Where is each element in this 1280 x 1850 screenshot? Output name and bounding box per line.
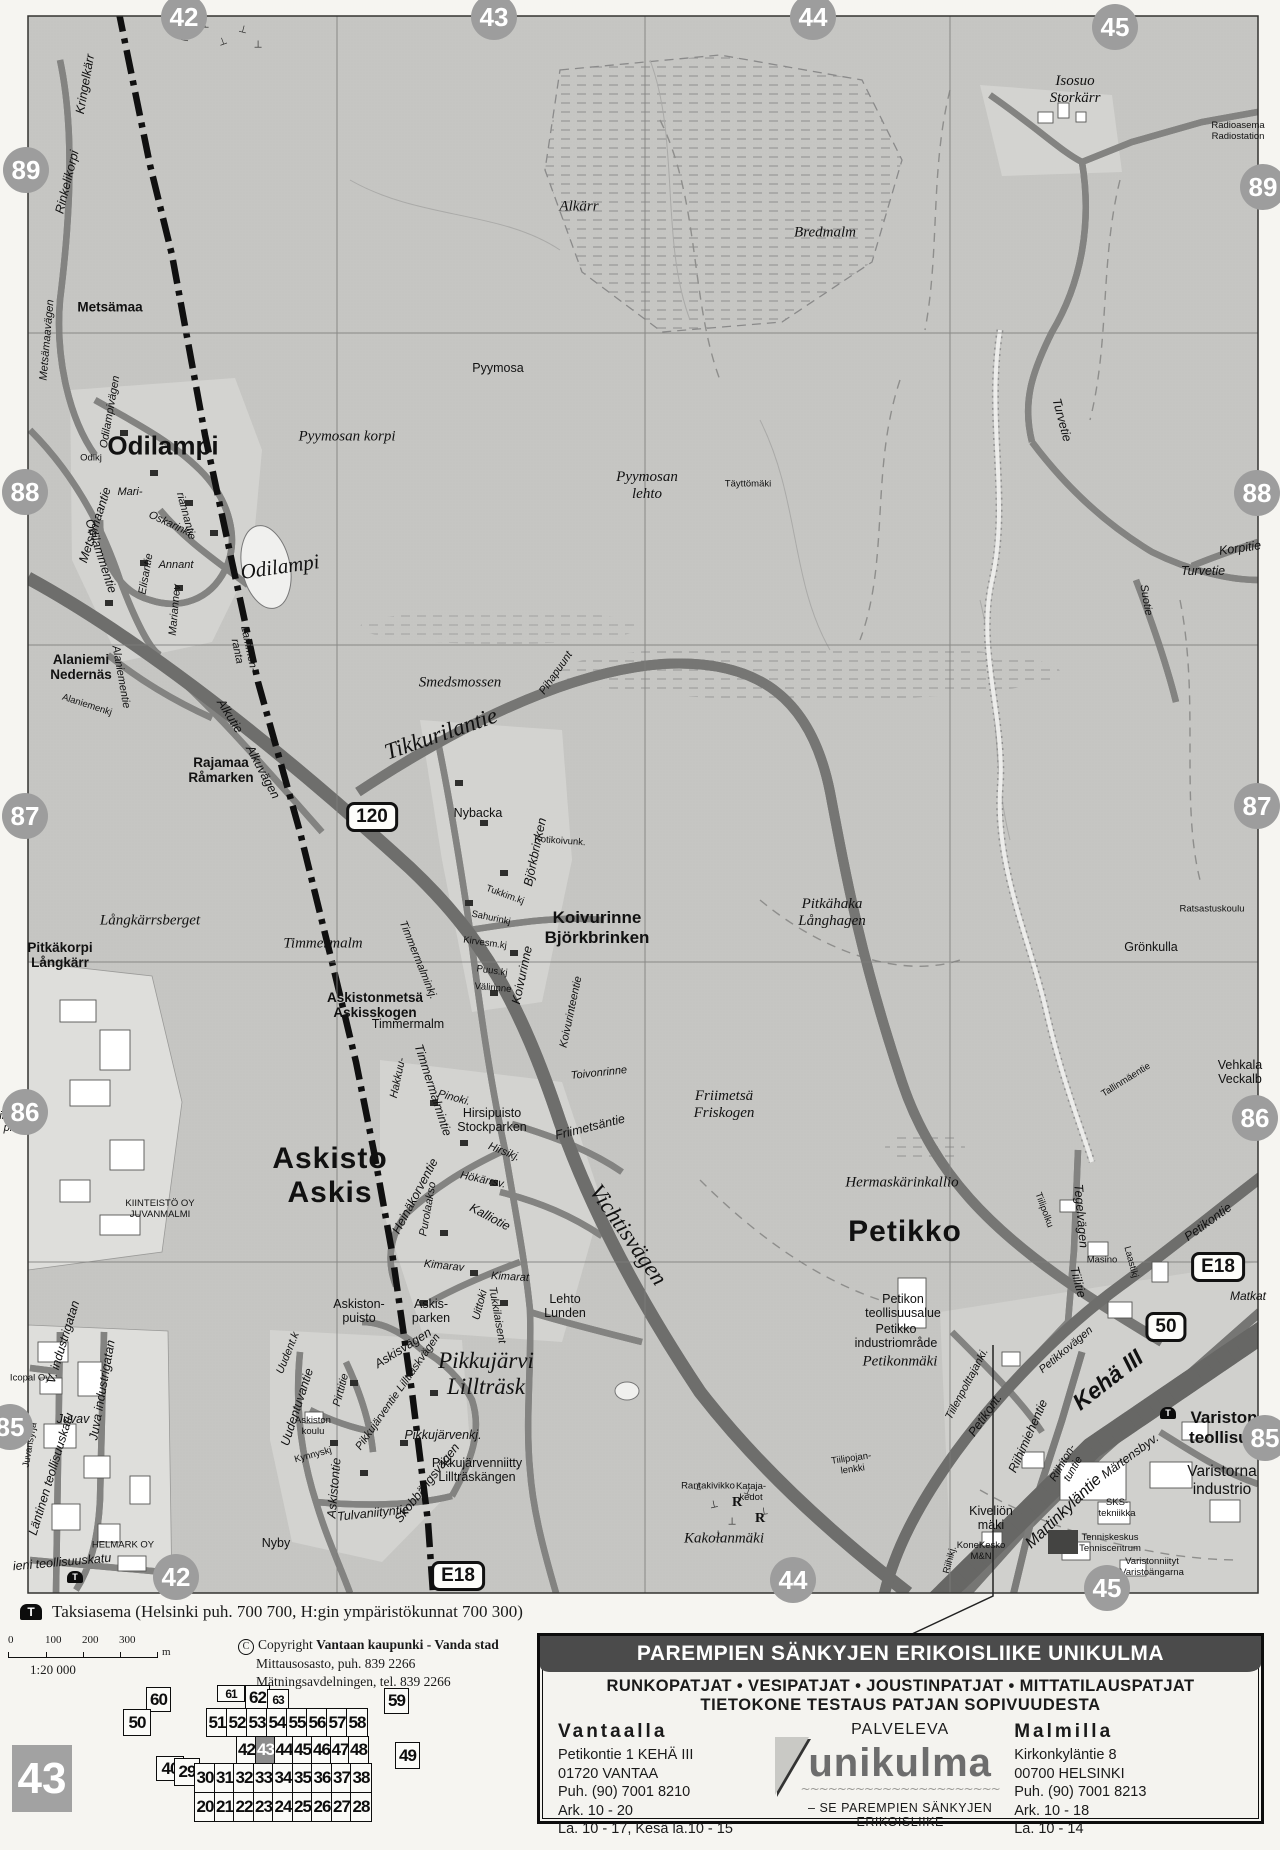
grid-page-cell: 20 — [194, 1792, 216, 1822]
grid-page-cell: 48 — [348, 1736, 369, 1764]
grid-page-cell: 33 — [253, 1763, 274, 1793]
map-label: Matkat — [1230, 1289, 1266, 1303]
road-shield: E18 — [1191, 1252, 1245, 1282]
map-label: SKS- tekniikka — [1099, 1497, 1136, 1519]
map-label: Pikkujärvi Lillträsk — [438, 1348, 534, 1400]
map-label: Radioasema Radiostation — [1211, 120, 1264, 142]
ad-address-line: Ark. 10 - 20 — [558, 1802, 786, 1821]
scale-tick: 200 — [82, 1634, 119, 1646]
taxi-station-icon: T — [67, 1571, 83, 1583]
unikulma-logo-wave: ~~~~~~~~~~~~~~~~~~~~~~ — [801, 1782, 1000, 1790]
ad-address-line: 01720 VANTAA — [558, 1765, 786, 1784]
page-edge-badge: 45 — [1092, 4, 1138, 50]
map-label: Timmermalm — [372, 1017, 444, 1031]
map-label: Askistonmetsä Askisskogen — [327, 990, 423, 1020]
map-label: Varistorna industrio — [1187, 1463, 1257, 1499]
copyright-line3: Mätningsavdelningen, tel. 839 2266 — [256, 1673, 499, 1691]
map-label: Varistonniityt Varistoängarna — [1120, 1556, 1184, 1578]
page-edge-badge: 42 — [153, 1554, 199, 1600]
page-edge-badge: 87 — [2, 793, 48, 839]
page-edge-badge: 86 — [1232, 1095, 1278, 1141]
page-edge-badge: 85 — [1242, 1415, 1280, 1461]
grid-page-cell: 63 — [267, 1689, 289, 1710]
map-label: R — [732, 1495, 742, 1511]
grid-page-cell: 50 — [123, 1709, 151, 1736]
ad-slogan-line: TIETOKONE TESTAUS PATJAN SOPIVUUDESTA — [540, 1696, 1261, 1715]
grid-page-cell: 57 — [326, 1708, 348, 1737]
page-edge-badge: 88 — [1234, 470, 1280, 516]
map-label: Hirsipuisto Stockparken — [457, 1106, 526, 1134]
scale-tick: 300 — [119, 1634, 156, 1646]
scale-tick: 0 — [8, 1634, 45, 1646]
map-label: Nyby — [262, 1536, 290, 1550]
map-label: Grönkulla — [1124, 940, 1178, 954]
map-label: Turvetie — [1181, 564, 1225, 578]
grid-page-cell: 37 — [331, 1763, 352, 1793]
grid-page-cell: 28 — [350, 1792, 372, 1822]
grid-page-cell: 47 — [330, 1736, 350, 1764]
scale-bar: 0100200300 m 1:20 000 — [8, 1634, 171, 1678]
grid-page-cell: 43 — [255, 1736, 276, 1764]
grid-page-cell: 59 — [384, 1688, 409, 1714]
grid-page-cell: 58 — [346, 1708, 368, 1737]
map-label: Täyttömäki — [725, 479, 771, 490]
map-label: Pitkähaka Långhagen — [798, 896, 866, 930]
map-label: Pyymosan korpi — [298, 429, 395, 446]
ad-address-line: La. 10 - 17, Kesä la.10 - 15 — [558, 1820, 786, 1839]
page-edge-badge: 89 — [3, 147, 49, 193]
grid-page-cell: 31 — [214, 1763, 235, 1793]
grid-page-cell: 53 — [246, 1708, 268, 1737]
grid-page-cell: 38 — [350, 1763, 372, 1793]
map-label: HELMARK OY — [92, 1540, 154, 1551]
ad-address-line: 00700 HELSINKI — [1014, 1765, 1242, 1784]
ad-products-line: RUNKOPATJAT • VESIPATJAT • JOUSTINPATJAT… — [540, 1677, 1261, 1696]
copyright-block: CCopyright Vantaan kaupunki - Vanda stad… — [238, 1636, 499, 1691]
grid-page-cell: 26 — [311, 1792, 333, 1822]
scale-tick-labels: 0100200300 — [8, 1634, 171, 1646]
map-page: RinkelikorpiKringelkärrMetsämaaMetsämaav… — [0, 0, 1280, 1850]
map-label: Hermaskärinkallio — [845, 1175, 958, 1192]
page-edge-badge: 86 — [2, 1089, 48, 1135]
map-label: Askiston- puisto — [333, 1297, 384, 1325]
road-shield: 120 — [346, 802, 398, 832]
map-label: Koivurinne Björkbrinken — [545, 908, 650, 948]
scale-tick: 100 — [45, 1634, 82, 1646]
ad-address-line: La. 10 - 14 — [1014, 1820, 1242, 1839]
map-label: Odilampi — [107, 431, 218, 462]
map-label: Masino — [1087, 1255, 1118, 1266]
scale-ratio: 1:20 000 — [30, 1662, 171, 1678]
map-label: Pyymosa — [472, 361, 523, 375]
grid-page-cell: 21 — [214, 1792, 235, 1822]
map-label: Pyymosan lehto — [616, 469, 678, 503]
grid-page-cell: 52 — [226, 1708, 248, 1737]
copyright-icon: C — [238, 1639, 254, 1655]
map-label: KoneKesko M&N — [957, 1540, 1006, 1562]
scale-unit: m — [162, 1646, 171, 1658]
map-label: Petikon teollisuusalue — [865, 1292, 941, 1320]
taxi-station-note: Taksiasema (Helsinki puh. 700 700, H:gin… — [52, 1602, 523, 1622]
map-label: Petikko industriområde — [855, 1322, 938, 1350]
grid-page-cell: 32 — [233, 1763, 255, 1793]
map-label: Timmermalm — [283, 936, 362, 953]
map-label: Petikonmäki — [863, 1354, 938, 1371]
grid-page-cell: 25 — [292, 1792, 313, 1822]
map-label: Rajamaa Råmarken — [188, 755, 253, 785]
map-label: Kimarat — [491, 1270, 529, 1284]
copyright-line2: Mittausosasto, puh. 839 2266 — [256, 1655, 499, 1673]
ad-address-line: Kirkonkyläntie 8 — [1014, 1746, 1242, 1765]
map-label: ⊥ — [714, 1530, 723, 1541]
map-label: ⊥ — [759, 1506, 769, 1518]
map-label: Askiston koulu — [295, 1415, 331, 1437]
ad-tagline: – SE PAREMPIEN SÄNKYJEN ERIKOISLIIKE — [786, 1801, 1014, 1829]
grid-page-cell: 46 — [311, 1736, 332, 1764]
grid-page-cell: 42 — [236, 1736, 257, 1764]
map-label: ⊥ — [254, 40, 263, 51]
map-label: Mari- — [117, 486, 142, 498]
map-label: Askisto Askis — [272, 1142, 387, 1210]
map-label: Kakolanmäki — [684, 1531, 764, 1548]
page-edge-badge: 45 — [1084, 1565, 1130, 1611]
taxi-station-icon: T — [20, 1604, 42, 1620]
grid-page-cell: 34 — [272, 1763, 294, 1793]
map-label: Rantakivikko — [681, 1481, 735, 1492]
map-label: Lehto Lunden — [544, 1292, 586, 1320]
ad-address-line: Puh. (90) 7001 8210 — [558, 1783, 786, 1802]
grid-page-cell: 61 — [217, 1685, 245, 1702]
ad-palveleva-text: PALVELEVA — [786, 1721, 1014, 1739]
page-edge-badge: 88 — [2, 469, 48, 515]
map-label: Ratsastuskoulu — [1180, 904, 1245, 915]
grid-page-cell: 45 — [292, 1736, 313, 1764]
legend-taxi-row: T Taksiasema (Helsinki puh. 700 700, H:g… — [20, 1602, 523, 1622]
map-label: Alkärr — [559, 199, 598, 216]
map-label: Smedsmossen — [419, 675, 502, 692]
map-label: Alaniemi Nedernäs — [50, 652, 112, 682]
map-label: Bredmalm — [794, 225, 856, 242]
ad-logo-column: PALVELEVA unikulma ~~~~~~~~~~~~~~~~~~~~~… — [786, 1721, 1014, 1839]
scale-line — [8, 1652, 158, 1658]
road-shield: E18 — [431, 1561, 485, 1591]
ad-vantaa-heading: Vantaalla — [558, 1721, 786, 1743]
ad-vantaa-column: Vantaalla Petikontie 1 KEHÄ III01720 VAN… — [558, 1721, 786, 1839]
grid-page-cell: 54 — [266, 1708, 288, 1737]
advertisement: PAREMPIEN SÄNKYJEN ERIKOISLIIKE UNIKULMA… — [537, 1633, 1264, 1824]
map-label: Askis- parken — [412, 1297, 450, 1325]
map-label: Petikko — [848, 1215, 962, 1249]
grid-page-cell: 44 — [274, 1736, 294, 1764]
grid-page-cell: 51 — [206, 1708, 228, 1737]
grid-page-cell: 56 — [306, 1708, 328, 1737]
page-number: 43 — [12, 1745, 72, 1812]
ad-address-line: Ark. 10 - 18 — [1014, 1802, 1242, 1821]
map-label: Pitkäkorpi Långkärr — [27, 940, 92, 970]
ad-address-line: Puh. (90) 7001 8213 — [1014, 1783, 1242, 1802]
unikulma-logo: unikulma — [801, 1741, 1000, 1786]
grid-page-cell: 27 — [331, 1792, 352, 1822]
map-label: Pikkujärvenkj. — [404, 1428, 481, 1442]
map-label: Isosuo Storkärr — [1050, 73, 1101, 107]
grid-page-cell: 22 — [233, 1792, 255, 1822]
map-label: Juvav — [57, 1412, 90, 1426]
grid-page-cell: 49 — [395, 1742, 420, 1769]
grid-page-cell: 24 — [272, 1792, 294, 1822]
map-label: Kiveliön mäki — [969, 1504, 1013, 1532]
map-label: ⊥ — [728, 1517, 737, 1528]
map-label: Icopal Oy — [10, 1373, 50, 1384]
map-label: Vehkala Veckalb — [1218, 1058, 1262, 1086]
ad-address-line: Petikontie 1 KEHÄ III — [558, 1746, 786, 1765]
page-edge-badge: 44 — [770, 1557, 816, 1603]
grid-page-cell: 23 — [253, 1792, 274, 1822]
page-edge-badge: 89 — [1240, 164, 1280, 210]
ad-malmi-heading: Malmilla — [1014, 1721, 1242, 1743]
ad-malmi-column: Malmilla Kirkonkyläntie 800700 HELSINKIP… — [1014, 1721, 1242, 1839]
map-label: Metsämaa — [77, 300, 142, 315]
grid-page-cell: 30 — [194, 1763, 216, 1793]
page-edge-badge: 87 — [1234, 783, 1280, 829]
grid-page-cell: 55 — [286, 1708, 308, 1737]
map-label: Odikj — [80, 453, 102, 464]
map-label: Friimetsä Friskogen — [694, 1088, 755, 1122]
map-label: Tenniskeskus Tenniscentrum — [1079, 1532, 1141, 1554]
grid-page-cell: 35 — [292, 1763, 313, 1793]
grid-page-cell: 36 — [311, 1763, 333, 1793]
map-label: KIINTEISTÖ OY JUVANMALMI — [125, 1198, 194, 1220]
taxi-station-icon: T — [1160, 1407, 1176, 1419]
road-shield: 50 — [1145, 1312, 1186, 1342]
map-label: Nybacka — [454, 806, 503, 820]
ad-title-band: PAREMPIEN SÄNKYJEN ERIKOISLIIKE UNIKULMA — [540, 1636, 1261, 1672]
map-label: Annant — [159, 559, 194, 571]
map-label: Långkärrsberget — [100, 913, 200, 930]
copyright-line1: CCopyright Vantaan kaupunki - Vanda stad — [238, 1636, 499, 1655]
